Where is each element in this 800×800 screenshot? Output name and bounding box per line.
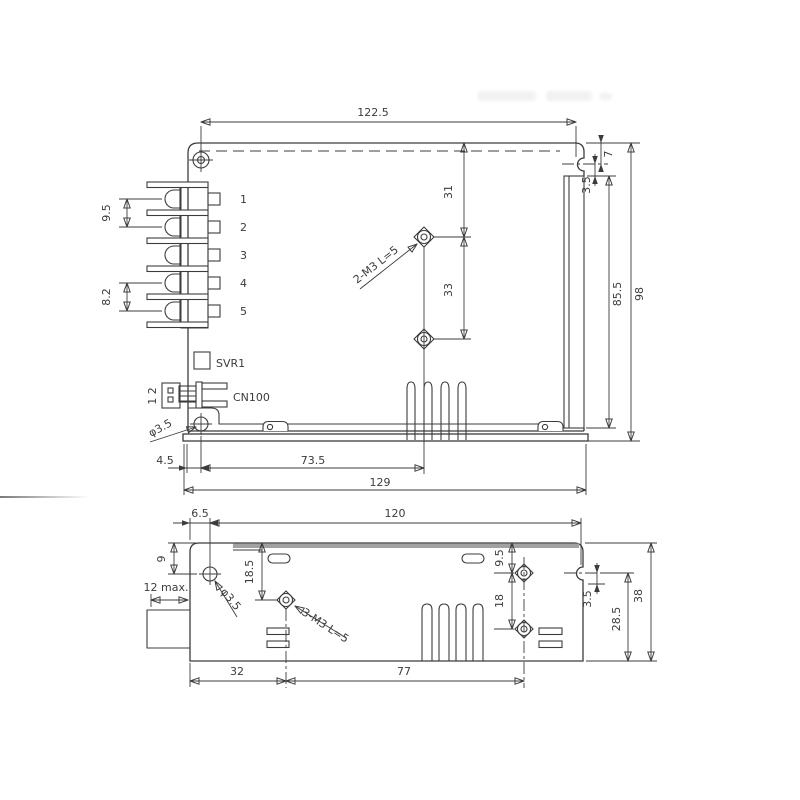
- cn100-label: CN100: [233, 391, 270, 404]
- terminal-screw: [165, 246, 180, 264]
- top-slot: [462, 554, 484, 563]
- dim-slot-drop: 3.5: [580, 154, 616, 194]
- terminal-number: 4: [240, 277, 247, 290]
- dim-label: 8.2: [100, 288, 113, 306]
- terminal-pin: [208, 221, 220, 233]
- dim-label: 9.5: [493, 549, 506, 567]
- terminal-screw: [165, 190, 180, 208]
- dim-label: 73.5: [301, 454, 326, 467]
- corner-mount-hole: [189, 148, 213, 172]
- dim-hole-to-boss: 73.5: [201, 454, 424, 468]
- dim-label: 9: [155, 556, 168, 563]
- base-hook: [538, 422, 563, 432]
- two-pin-connector: 1 2: [146, 383, 180, 408]
- m3-label: 3-M3 L=5: [299, 606, 351, 646]
- cn100-connector: CN100: [179, 382, 270, 408]
- dim-hole-to-thread: 18.5: [243, 543, 278, 600]
- terminal-pin: [208, 193, 220, 205]
- terminal-screw: [165, 302, 180, 320]
- hole-dia-label: φ3.5: [146, 417, 174, 440]
- dim-label: 7: [602, 151, 615, 158]
- terminal-number: 2: [240, 221, 247, 234]
- dim-label: 3.5: [580, 176, 593, 194]
- dim-thread-pitch: 18: [493, 573, 514, 629]
- terminal-pin: [208, 277, 220, 289]
- base-hole: φ3.5: [199, 563, 244, 617]
- dim-label: 120: [385, 507, 406, 520]
- terminal-number: 3: [240, 249, 247, 262]
- m3-label: 2-M3 L=5: [351, 243, 401, 286]
- mechanical-drawing: 1 2 3 4 5 9.5 8.2 SVR1: [0, 0, 800, 800]
- bottom-view: 12 max. φ3.5 6.5: [144, 507, 657, 688]
- dim-label: 98: [633, 287, 646, 301]
- terminal-block: 1 2 3 4 5: [147, 182, 247, 328]
- terminal-screw: [165, 218, 180, 236]
- dim-label: 32: [230, 665, 244, 678]
- svr1-label: SVR1: [216, 357, 245, 370]
- dim-label: 38: [632, 589, 645, 603]
- terminal-pin: [208, 249, 220, 261]
- dim-slot-to-bottom: 28.5: [586, 573, 634, 661]
- top-view: 1 2 3 4 5 9.5 8.2 SVR1: [100, 106, 646, 495]
- m3-boss: [277, 591, 295, 609]
- dim-label: 31: [442, 185, 455, 199]
- dim-boss-offsets: 31 33: [433, 143, 471, 339]
- dim-label: 122.5: [357, 106, 389, 119]
- dim-base-width: 129: [184, 444, 586, 495]
- cover-edge-strip: [233, 544, 579, 549]
- hole-dia-label: φ3.5: [218, 586, 244, 613]
- slot-pair-right: [539, 628, 562, 648]
- dim-label: 3.5: [581, 590, 594, 608]
- dim-label: 4.5: [156, 454, 174, 467]
- dim-edge-to-hole: 6.5: [173, 507, 227, 565]
- dim-overall-depth: 38: [585, 543, 657, 661]
- dim-mount-width: 120: [210, 507, 581, 565]
- vent-slots: [422, 604, 483, 661]
- svr1-potentiometer: SVR1: [194, 352, 245, 370]
- side-rail: [564, 176, 584, 428]
- base-hole: φ3.5: [146, 413, 212, 442]
- dim-label: 9.5: [100, 204, 113, 222]
- dim-label: 18: [493, 594, 506, 608]
- dim-left-to-thread: 32: [190, 663, 286, 687]
- drawing-page: 1 2 3 4 5 9.5 8.2 SVR1: [0, 0, 800, 800]
- dim-label: 129: [370, 476, 391, 489]
- dim-slot-top-offset: 7: [586, 135, 640, 172]
- dim-label: 33: [442, 283, 455, 297]
- pin-numbers-label: 1 2: [146, 387, 159, 405]
- m3-callout: 3-M3 L=5: [295, 606, 351, 646]
- terminal-number: 5: [240, 305, 247, 318]
- dim-label: 28.5: [610, 607, 623, 632]
- dim-label: 85.5: [611, 282, 624, 307]
- inner-floor-edge: [188, 408, 562, 424]
- protrusion-label: 12 max.: [144, 581, 189, 594]
- base-hook: [263, 422, 288, 432]
- dim-overall-width: 122.5: [201, 106, 576, 157]
- terminal-number: 1: [240, 193, 247, 206]
- terminal-screw: [165, 274, 180, 292]
- m3-callout: 2-M3 L=5: [351, 243, 417, 289]
- dim-label: 6.5: [191, 507, 209, 520]
- dim-label: 77: [397, 665, 411, 678]
- dim-label: 18.5: [243, 560, 256, 585]
- top-slot: [268, 554, 290, 563]
- terminal-pin: [208, 305, 220, 317]
- dim-rail-length: 85.5: [586, 176, 624, 428]
- dim-thread-span: 77: [286, 665, 524, 681]
- dim-slot-drop: 3.5: [581, 563, 605, 608]
- left-protrusion: 12 max.: [144, 581, 190, 648]
